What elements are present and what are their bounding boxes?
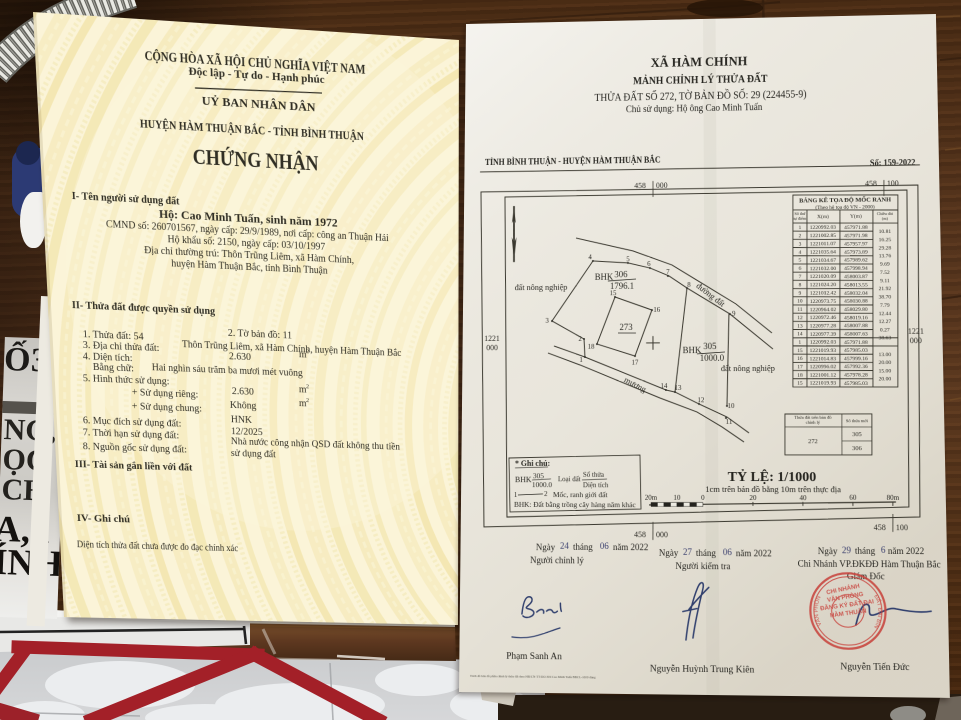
svg-text:29: 29 <box>842 545 851 555</box>
svg-text:458029.80: 458029.80 <box>844 307 868 314</box>
svg-text:24: 24 <box>560 541 570 551</box>
svg-text:457989.62: 457989.62 <box>844 257 868 264</box>
svg-text:13.00: 13.00 <box>879 352 892 358</box>
svg-text:năm 2022: năm 2022 <box>736 548 772 558</box>
svg-text:11: 11 <box>726 419 733 427</box>
svg-text:năm 2022: năm 2022 <box>613 542 648 552</box>
svg-text:7.52: 7.52 <box>880 270 890 276</box>
svg-text:X(m): X(m) <box>817 213 829 220</box>
svg-text:000: 000 <box>910 335 923 345</box>
svg-text:1221032.00: 1221032.00 <box>810 266 837 273</box>
svg-text:chỉnh lý: chỉnh lý <box>806 420 822 425</box>
svg-text:1000.0: 1000.0 <box>700 353 724 363</box>
svg-text:458: 458 <box>634 181 646 190</box>
svg-text:1220996.02: 1220996.02 <box>810 364 837 371</box>
svg-text:100: 100 <box>887 178 899 188</box>
svg-text:10.81: 10.81 <box>879 229 892 235</box>
svg-text:9.11: 9.11 <box>880 278 890 284</box>
svg-text:2.630: 2.630 <box>232 386 254 398</box>
svg-text:5: 5 <box>626 256 629 263</box>
svg-text:1: 1 <box>579 357 582 364</box>
svg-text:458007.88: 458007.88 <box>844 323 868 330</box>
svg-text:60: 60 <box>849 495 856 503</box>
svg-text:BHK: BHK <box>515 474 532 484</box>
svg-text:273: 273 <box>619 323 632 333</box>
svg-text:1221001.12: 1221001.12 <box>810 372 837 379</box>
svg-text:29.28: 29.28 <box>879 245 892 251</box>
svg-text:18: 18 <box>797 372 803 378</box>
svg-text:20: 20 <box>749 494 756 502</box>
svg-text:20.00: 20.00 <box>879 360 892 366</box>
svg-text:Không: Không <box>230 400 257 412</box>
svg-text:Chiều dài: Chiều dài <box>877 212 893 216</box>
svg-text:000: 000 <box>656 529 668 539</box>
svg-text:458007.63: 458007.63 <box>844 331 868 338</box>
svg-text:06: 06 <box>723 547 732 557</box>
svg-text:Người kiểm tra: Người kiểm tra <box>675 561 730 571</box>
svg-text:Diện tích: Diện tích <box>583 482 609 490</box>
svg-text:1220992.03: 1220992.03 <box>810 225 837 232</box>
svg-text:13: 13 <box>797 323 803 329</box>
svg-text:458003.87: 458003.87 <box>844 274 868 281</box>
svg-text:20.00: 20.00 <box>879 376 892 382</box>
svg-text:40: 40 <box>799 495 806 503</box>
svg-text:305: 305 <box>703 342 716 352</box>
svg-text:10: 10 <box>727 403 734 411</box>
svg-text:38.63: 38.63 <box>879 335 892 341</box>
svg-text:1221012.42: 1221012.42 <box>810 290 837 297</box>
svg-text:1: 1 <box>514 492 517 500</box>
svg-text:Số thứ: Số thứ <box>794 212 806 216</box>
svg-text:457992.36: 457992.36 <box>844 364 868 371</box>
svg-text:12.27: 12.27 <box>879 319 892 325</box>
svg-text:IV- Ghi chú: IV- Ghi chú <box>77 512 131 525</box>
svg-text:000: 000 <box>486 343 498 353</box>
svg-text:13.76: 13.76 <box>879 253 892 259</box>
svg-text:2: 2 <box>578 336 581 343</box>
svg-text:306: 306 <box>852 446 862 452</box>
svg-text:1220992.03: 1220992.03 <box>810 339 837 346</box>
svg-text:(Theo hệ tọa độ VN - 2000): (Theo hệ tọa độ VN - 2000) <box>815 205 875 211</box>
svg-text:458: 458 <box>865 179 877 189</box>
svg-text:15: 15 <box>797 348 803 354</box>
svg-text:9: 9 <box>732 311 736 318</box>
svg-text:14: 14 <box>661 383 669 390</box>
svg-text:457978.28: 457978.28 <box>844 372 868 379</box>
svg-text:1221035.64: 1221035.64 <box>810 249 837 256</box>
svg-text:8: 8 <box>687 282 690 289</box>
svg-text:3: 3 <box>545 318 548 325</box>
svg-text:15.00: 15.00 <box>878 368 891 374</box>
svg-text:đất nông nghiệp: đất nông nghiệp <box>721 363 775 373</box>
svg-text:Nguyễn Tiến Đức: Nguyễn Tiến Đức <box>840 661 910 673</box>
svg-text:1220972.46: 1220972.46 <box>810 315 837 322</box>
svg-text:tự điểm: tự điểm <box>794 216 807 221</box>
svg-text:XÃ HÀM CHÍNH: XÃ HÀM CHÍNH <box>651 53 748 70</box>
svg-text:MẢNH CHỈNH LÝ THỬA ĐẤT: MẢNH CHỈNH LÝ THỬA ĐẤT <box>633 71 768 87</box>
svg-text:9.69: 9.69 <box>880 261 890 267</box>
svg-text:457971.88: 457971.88 <box>844 339 868 346</box>
svg-text:12.44: 12.44 <box>879 311 892 317</box>
svg-text:10: 10 <box>797 298 803 304</box>
svg-text:Ngày: Ngày <box>659 548 679 558</box>
svg-text:16.25: 16.25 <box>879 237 892 243</box>
svg-text:457973.89: 457973.89 <box>844 249 868 256</box>
svg-text:1220977.28: 1220977.28 <box>810 323 837 330</box>
svg-text:2.630: 2.630 <box>229 351 251 363</box>
svg-text:2: 2 <box>544 491 547 499</box>
svg-text:tháng: tháng <box>696 548 716 558</box>
svg-text:16: 16 <box>797 356 803 362</box>
svg-text:1221019.93: 1221019.93 <box>810 348 837 355</box>
svg-text:13: 13 <box>674 385 681 392</box>
svg-text:BHK: Đất bằng trồng cây hàng n: BHK: Đất bằng trồng cây hàng năm khác <box>514 502 636 510</box>
svg-text:1220973.75: 1220973.75 <box>810 298 837 305</box>
svg-text:100: 100 <box>896 522 909 532</box>
svg-text:1221024.20: 1221024.20 <box>810 282 837 289</box>
svg-text:457957.97: 457957.97 <box>844 241 868 248</box>
svg-text:0.27: 0.27 <box>880 327 890 333</box>
svg-text:6: 6 <box>881 545 886 555</box>
svg-text:458: 458 <box>874 522 887 532</box>
svg-text:17: 17 <box>632 359 640 366</box>
svg-text:Ngày: Ngày <box>818 546 839 556</box>
svg-text:18: 18 <box>588 344 595 351</box>
svg-text:457999.16: 457999.16 <box>844 356 868 363</box>
svg-text:Người chỉnh lý: Người chỉnh lý <box>530 555 585 565</box>
svg-text:11: 11 <box>797 307 803 313</box>
svg-text:Số thửa mới: Số thửa mới <box>846 418 869 423</box>
svg-text:TỶ LỆ: 1/1000: TỶ LỆ: 1/1000 <box>728 468 817 484</box>
svg-text:HNK: HNK <box>231 414 253 426</box>
svg-text:15: 15 <box>797 380 803 386</box>
svg-text:12: 12 <box>797 315 803 321</box>
svg-text:1221020.09: 1221020.09 <box>810 274 837 281</box>
svg-text:Số: 159-2022: Số: 159-2022 <box>870 157 916 168</box>
svg-text:tháng: tháng <box>855 546 875 556</box>
svg-text:1220964.02: 1220964.02 <box>810 307 837 314</box>
svg-text:12: 12 <box>697 397 704 404</box>
svg-text:457998.94: 457998.94 <box>844 266 868 273</box>
svg-text:305: 305 <box>852 432 862 438</box>
svg-text:tháng: tháng <box>573 542 593 552</box>
svg-text:Chi Nhánh VP.ĐKĐĐ Hàm Thuận Bắ: Chi Nhánh VP.ĐKĐĐ Hàm Thuận Bắc <box>798 559 941 570</box>
svg-text:80m: 80m <box>886 494 899 502</box>
svg-text:năm 2022: năm 2022 <box>888 546 924 556</box>
svg-text:sử dụng đất: sử dụng đất <box>231 448 276 460</box>
svg-text:000: 000 <box>656 181 668 190</box>
svg-text:1220977.39: 1220977.39 <box>810 331 837 338</box>
svg-text:Mốc, ranh giới đất: Mốc, ranh giới đất <box>553 492 608 500</box>
svg-text:306: 306 <box>614 270 627 280</box>
svg-text:457985.03: 457985.03 <box>844 348 868 355</box>
svg-text:Y(m): Y(m) <box>850 213 862 220</box>
svg-text:457971.98: 457971.98 <box>844 233 868 240</box>
svg-text:1221011.07: 1221011.07 <box>810 241 837 248</box>
svg-text:* Ghi chú:: * Ghi chú: <box>515 459 550 469</box>
svg-text:458013.55: 458013.55 <box>844 282 868 289</box>
svg-text:21.92: 21.92 <box>879 286 892 292</box>
svg-text:272: 272 <box>808 439 818 445</box>
svg-text:458019.16: 458019.16 <box>844 315 868 322</box>
svg-text:Nguyễn Huỳnh Trung Kiên: Nguyễn Huỳnh Trung Kiên <box>650 663 755 675</box>
svg-text:Phạm Sanh An: Phạm Sanh An <box>506 650 562 662</box>
svg-text:Số thửa: Số thửa <box>583 472 604 480</box>
svg-text:14: 14 <box>797 331 803 337</box>
svg-text:1221019.93: 1221019.93 <box>810 380 837 387</box>
svg-text:7.79: 7.79 <box>880 302 890 308</box>
svg-text:1cm trên bản đồ bằng 10m trên: 1cm trên bản đồ bằng 10m trên thực địa <box>705 484 841 494</box>
svg-text:458032.04: 458032.04 <box>844 290 868 297</box>
svg-text:20m: 20m <box>645 495 657 503</box>
svg-text:16: 16 <box>653 307 661 314</box>
svg-text:Ngày: Ngày <box>536 542 556 552</box>
svg-text:458030.88: 458030.88 <box>844 298 868 305</box>
svg-text:458: 458 <box>634 529 646 539</box>
svg-text:1221014.83: 1221014.83 <box>810 356 837 363</box>
svg-text:1221034.67: 1221034.67 <box>810 257 837 264</box>
svg-text:38.70: 38.70 <box>879 294 892 300</box>
svg-text:1796.1: 1796.1 <box>610 282 634 292</box>
svg-text:457985.03: 457985.03 <box>844 380 868 387</box>
svg-text:27: 27 <box>683 547 692 557</box>
svg-text:đất nông nghiệp: đất nông nghiệp <box>515 282 568 292</box>
svg-text:1221002.85: 1221002.85 <box>810 233 837 240</box>
svg-text:0: 0 <box>701 495 705 503</box>
svg-text:1000.0: 1000.0 <box>532 482 553 490</box>
svg-text:10: 10 <box>673 495 680 503</box>
svg-text:17: 17 <box>797 364 803 370</box>
svg-text:06: 06 <box>600 541 609 551</box>
svg-text:Loại đất: Loại đất <box>558 476 581 484</box>
svg-text:(m): (m) <box>882 217 889 221</box>
svg-text:457971.88: 457971.88 <box>844 225 868 232</box>
